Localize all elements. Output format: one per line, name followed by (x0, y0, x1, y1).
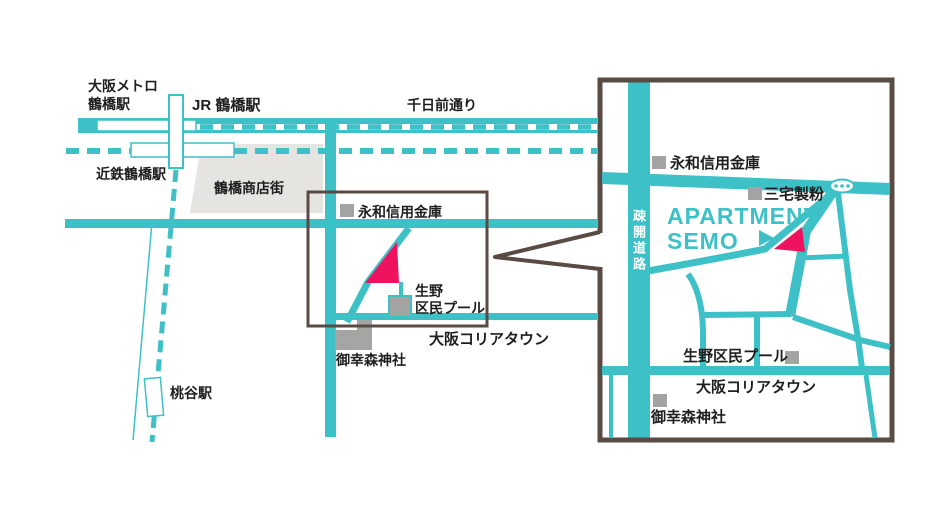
eiwa-bank-marker-detail (652, 156, 666, 169)
detail-bottom-road (602, 366, 890, 375)
jr-station-box (169, 95, 183, 168)
koreatown-label-overview: 大阪コリアタウン (429, 331, 549, 348)
miyake-flour-marker (748, 187, 762, 200)
momodani-station-box (144, 377, 163, 416)
signal-dot (846, 184, 850, 188)
sokai-road-label: 疎開道路 (632, 209, 645, 273)
eiwa-bank-label-detail: 永和信用金庫 (670, 155, 760, 172)
miyake-flour-label: 三宅製粉 (764, 186, 824, 203)
pool-label-detail: 生野区民プール (683, 348, 788, 365)
shrine-grounds-area (335, 318, 372, 350)
detail-connector-road (800, 256, 848, 258)
overview-main-road (65, 219, 597, 228)
eiwa-bank-marker-overview (340, 204, 354, 217)
access-map: 大阪メトロ 鶴橋駅 JR 鶴橋駅 近鉄鶴橋駅 鶴橋商店街 千日前通り 永和信用金… (0, 0, 940, 529)
signal-dot (834, 184, 838, 188)
apartment-site-marker-overview (365, 242, 399, 283)
detail-middle-road (703, 314, 791, 315)
pool-building (389, 296, 411, 317)
apartment-name-line2: SEMO (667, 230, 739, 253)
pool-label-line2: 区民プール (415, 300, 485, 316)
callout-wedge (495, 232, 600, 269)
shrine-marker-detail (653, 394, 667, 407)
metro-station-label-line1: 大阪メトロ (88, 78, 158, 94)
sennichimae-street-label: 千日前通り (407, 97, 477, 113)
kintetsu-station-label: 近鉄鶴橋駅 (96, 166, 166, 182)
metro-station-label-line2: 鶴橋駅 (88, 96, 130, 112)
apartment-name-line1: APARTMENT (667, 205, 819, 228)
koreatown-label-detail: 大阪コリアタウン (696, 379, 816, 396)
shrine-label-detail: 御幸森神社 (651, 409, 726, 426)
eiwa-bank-label-overview: 永和信用金庫 (358, 204, 442, 220)
shrine-label-overview: 御幸森神社 (336, 352, 406, 368)
shotengai-label: 鶴橋商店街 (214, 180, 284, 196)
signal-dot (840, 184, 844, 188)
pool-label-line1: 生野 (415, 283, 443, 299)
jr-station-label: JR 鶴橋駅 (192, 97, 260, 114)
momodani-station-label: 桃谷駅 (170, 385, 212, 401)
overview-vertical-road (325, 120, 336, 437)
